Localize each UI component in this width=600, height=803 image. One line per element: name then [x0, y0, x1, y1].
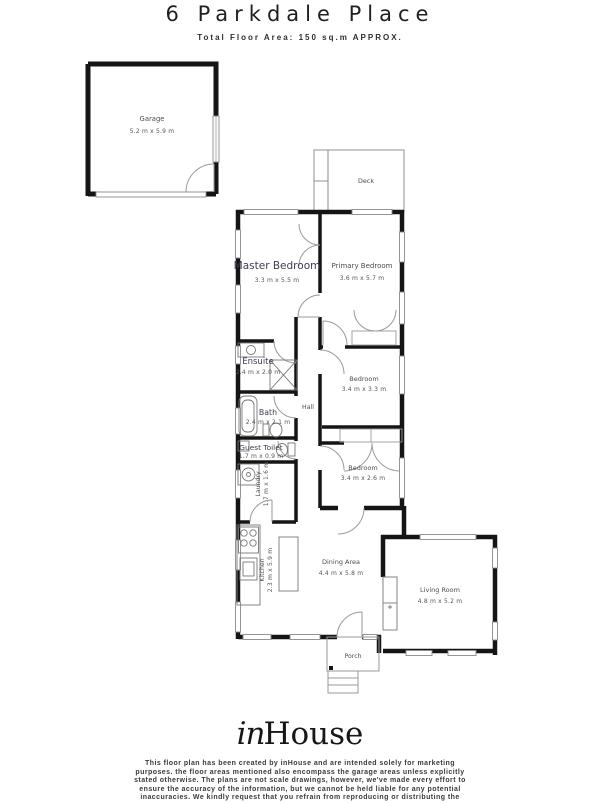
disclaimer-line: This floor plan has been created by inHo… — [0, 760, 600, 769]
room-dims-bath: 2.4 m x 2.1 m — [246, 419, 291, 426]
disclaimer-line: ensure the accuracy of the information, … — [0, 786, 600, 795]
room-dims-kitchen: 2.3 m x 5.9 m — [267, 548, 274, 593]
room-label-guest-toilet: Guest Toilet — [239, 443, 282, 452]
floor-plan-page: { "header": { "title": "6 Parkdale Place… — [0, 0, 600, 800]
room-label-bath: Bath — [259, 408, 277, 417]
room-dims-bedroom-1: 3.4 m x 3.3 m — [342, 386, 387, 393]
logo-serif-part: House — [263, 716, 363, 752]
room-label-deck: Deck — [358, 177, 374, 185]
room-dims-living-room: 4.8 m x 5.2 m — [418, 598, 463, 605]
disclaimer-line: inaccuracies. We kindly request that you… — [0, 794, 600, 803]
room-label-primary-bedroom: Primary Bedroom — [332, 262, 393, 270]
room-label-ensuite: Ensuite — [242, 357, 274, 367]
room-label-bedroom-2: Bedroom — [348, 464, 377, 472]
room-label-laundry: Laundry — [255, 471, 262, 497]
floor-plan-drawing: Garage 5.2 m x 5.9 m Deck Master Bedroom… — [0, 0, 600, 800]
disclaimer-line: purposes. the floor areas mentioned also… — [0, 769, 600, 778]
room-label-master-bedroom: Master Bedroom — [234, 260, 321, 272]
room-dims-ensuite: 2.4 m x 2.0 m — [236, 369, 281, 376]
room-label-bedroom-1: Bedroom — [349, 375, 378, 383]
room-label-garage: Garage — [140, 115, 165, 123]
garage-window — [213, 116, 219, 162]
dining-shelf — [383, 577, 397, 630]
room-dims-master-bedroom: 3.3 m x 5.5 m — [255, 277, 300, 284]
room-label-living-room: Living Room — [420, 586, 460, 594]
room-label-dining-area: Dining Area — [322, 558, 360, 566]
room-dims-garage: 5.2 m x 5.9 m — [130, 128, 175, 135]
room-label-porch: Porch — [344, 653, 361, 660]
room-dims-bedroom-2: 3.4 m x 2.6 m — [341, 475, 386, 482]
disclaimer-text: This floor plan has been created by inHo… — [0, 760, 600, 803]
room-dims-laundry: 1.7 m x 1.6 m — [263, 462, 270, 507]
room-dims-guest-toilet: 1.7 m x 0.9 m — [239, 453, 284, 460]
porch-structure — [327, 637, 379, 693]
room-dims-primary-bedroom: 3.6 m x 5.7 m — [340, 275, 385, 282]
inhouse-logo: inHouse — [0, 716, 600, 752]
room-label-hall: Hall — [302, 404, 314, 411]
garage-door-strip — [96, 192, 206, 197]
disclaimer-line: stated otherwise. The plans are not scal… — [0, 777, 600, 786]
garage-entry-door-icon — [186, 164, 214, 192]
logo-script-part: in — [237, 716, 265, 752]
room-dims-dining-area: 4.4 m x 5.8 m — [319, 570, 364, 577]
room-label-kitchen: Kitchen — [259, 558, 266, 581]
